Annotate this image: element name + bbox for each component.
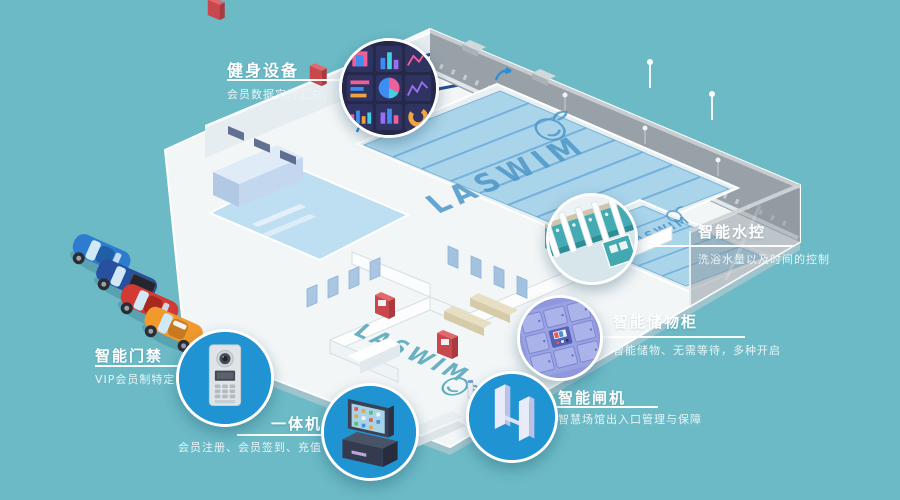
kiosk-terminal-hotspot [321,383,419,481]
access-control-hotspot [176,329,274,427]
gate-connector-line [557,406,658,408]
shower-stalls-icon [549,196,635,282]
gate-callout-subtitle: 智慧场馆出入口管理与保障 [558,411,702,427]
kiosk-terminal-icon [324,386,416,478]
fitness-callout-title: 健身设备 [227,57,299,81]
smart-locker-icon [520,298,600,378]
locker-callout-title: 智能储物柜 [613,311,698,332]
access-callout-title: 智能门禁 [95,345,163,366]
turnstile-hotspot [466,371,558,463]
intercom-panel-icon [179,332,271,424]
water-connector-line [637,245,794,247]
water-callout-subtitle: 洗浴水量以及时间的控制 [698,251,830,267]
fitness-connector-line [227,79,342,81]
facility-illustration: LASWIM LASWIM [0,0,900,500]
smart-natatorium-infographic: LASWIM LASWIM [0,0,900,500]
water-callout-title: 智能水控 [698,221,766,242]
locker-connector-line [603,336,745,338]
kiosk-callout-subtitle: 会员注册、会员签到、充值 [152,439,322,455]
locker-callout-subtitle: 智能储物、无需等待，多种开启 [613,342,781,358]
access-connector-line [95,365,178,367]
gate-callout-title: 智能闸机 [558,387,626,408]
kiosk-connector-line [237,434,321,436]
fitness-dashboard-icon [342,41,436,135]
smart-locker-hotspot [517,295,603,381]
smart-water-control-hotspot [546,193,638,285]
fitness-equipment-hotspot [339,38,439,138]
turnstile-icon [469,374,555,460]
